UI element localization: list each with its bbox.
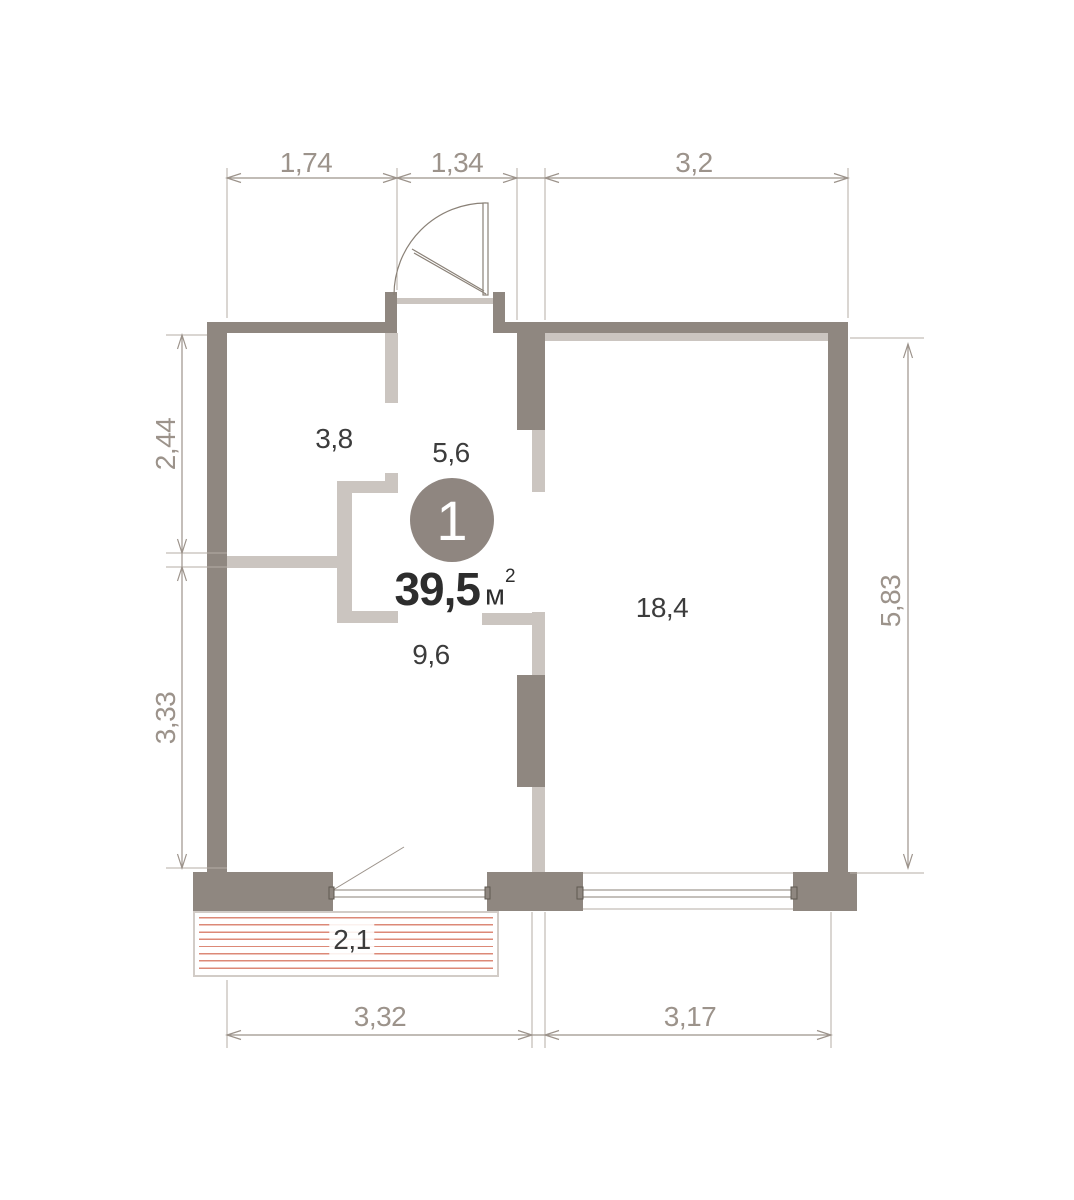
extension-lines — [166, 168, 924, 1048]
total-area-unit: м2 — [485, 578, 516, 613]
unit-number: 1 — [436, 488, 467, 553]
unit-number-badge: 1 — [410, 478, 494, 562]
total-area-superscript: 2 — [505, 566, 516, 587]
dim-bottom-1: 3,32 — [354, 1001, 407, 1033]
living-room-window — [577, 873, 797, 909]
room-area-balcony: 2,1 — [329, 924, 374, 956]
total-area-value: 39,5 — [394, 562, 480, 616]
dim-left-1: 2,44 — [150, 418, 182, 471]
dim-top-1: 1,74 — [280, 147, 333, 179]
dim-top-2: 1,34 — [431, 147, 484, 179]
total-area: 39,5 м2 — [394, 562, 515, 616]
plan-linework — [0, 0, 1074, 1200]
balcony-door-window — [329, 887, 490, 899]
room-area-hallway: 5,6 — [432, 437, 469, 469]
room-area-top-left: 3,8 — [315, 423, 352, 455]
room-area-living: 18,4 — [636, 592, 689, 624]
dim-right-1: 5,83 — [875, 575, 907, 628]
balcony-door-swing — [333, 847, 404, 890]
floor-plan: 1 39,5 м2 3,8 5,6 9,6 18,4 2,1 1,74 1,34… — [0, 0, 1074, 1200]
entrance-door — [394, 203, 488, 295]
dim-left-2: 3,33 — [150, 692, 182, 745]
room-area-kitchen: 9,6 — [412, 639, 449, 671]
dim-top-3: 3,2 — [675, 147, 712, 179]
dim-bottom-2: 3,17 — [664, 1001, 717, 1033]
